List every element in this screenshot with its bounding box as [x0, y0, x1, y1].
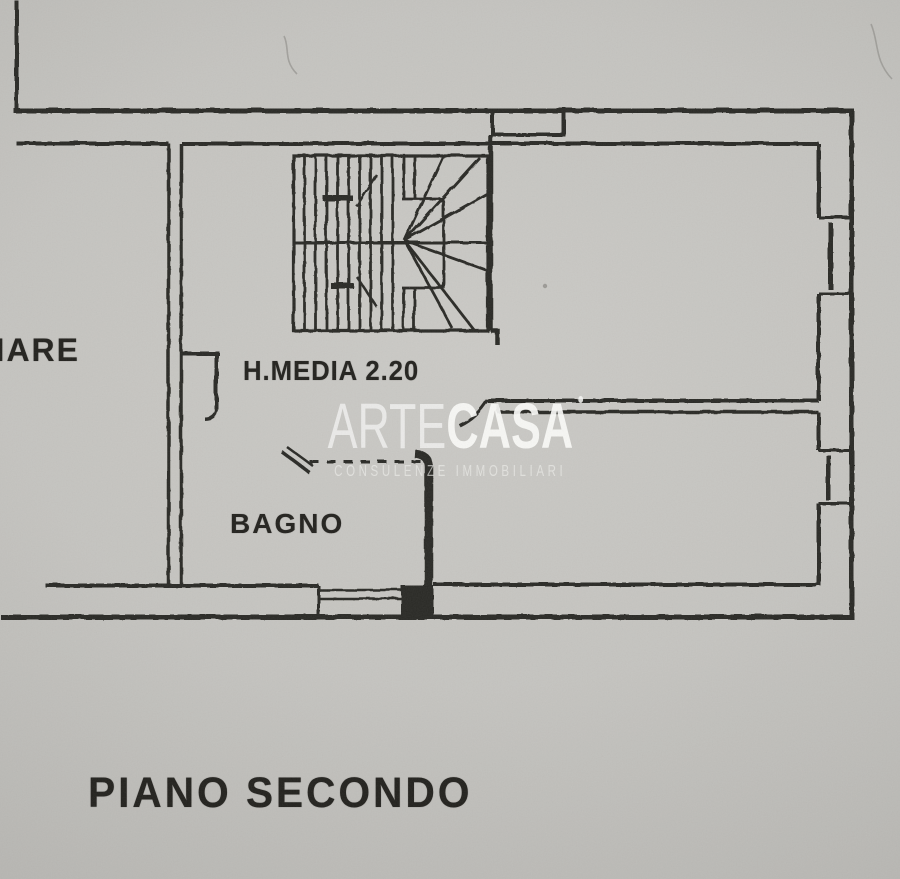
room-bottom-right-region [437, 412, 818, 585]
window-right-lower [818, 450, 852, 503]
window-bottom [318, 585, 402, 615]
window-right-upper [818, 217, 852, 293]
plan-title: PIANO SECONDO [88, 769, 472, 818]
bathroom-label: BAGNO [230, 508, 344, 540]
height-note-label: H.MEDIA 2.20 [243, 355, 419, 387]
floor-plan-scan: LIARE H.MEDIA 2.20 BAGNO PIANO SECONDO A… [0, 0, 900, 879]
room-label-left-partial: LIARE [0, 332, 80, 369]
room-top-right-region [490, 143, 818, 400]
stair-hall-region [181, 143, 490, 453]
